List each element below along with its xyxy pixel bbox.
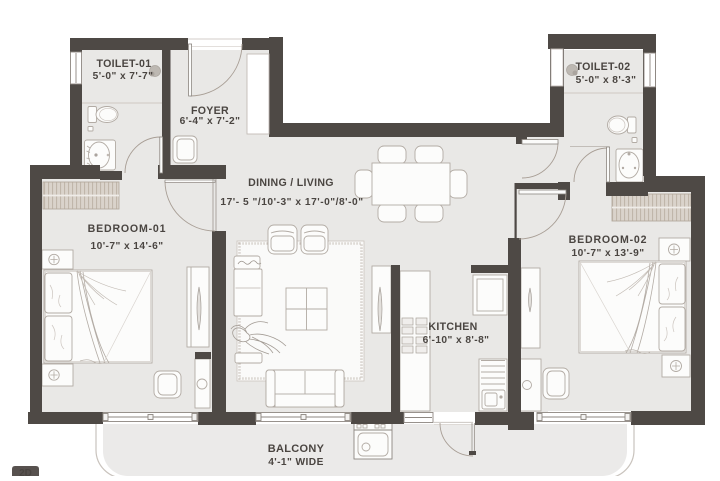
svg-text:6'-10" x 8'-8": 6'-10" x 8'-8": [423, 335, 490, 346]
svg-text:6'-4" x 7'-2": 6'-4" x 7'-2": [180, 116, 241, 127]
svg-text:17'- 5 "/10'-3" x 17'-0"/8'-0": 17'- 5 "/10'-3" x 17'-0"/8'-0": [220, 197, 363, 208]
svg-text:5'-0" x 7'-7": 5'-0" x 7'-7": [93, 71, 154, 82]
svg-text:4'-1" WIDE: 4'-1" WIDE: [268, 457, 324, 468]
svg-text:2D: 2D: [19, 468, 32, 476]
svg-text:KITCHEN: KITCHEN: [428, 321, 477, 333]
svg-text:BEDROOM-01: BEDROOM-01: [88, 223, 167, 235]
svg-text:DINING / LIVING: DINING / LIVING: [248, 177, 334, 189]
svg-text:BALCONY: BALCONY: [268, 443, 325, 455]
svg-text:TOILET-01: TOILET-01: [97, 58, 152, 70]
svg-text:10'-7" x 14'-6": 10'-7" x 14'-6": [91, 241, 164, 252]
svg-text:BEDROOM-02: BEDROOM-02: [569, 234, 648, 246]
svg-text:5'-0" x 8'-3": 5'-0" x 8'-3": [576, 75, 637, 86]
svg-text:TOILET-02: TOILET-02: [576, 61, 631, 73]
svg-text:10'-7" x 13'-9": 10'-7" x 13'-9": [572, 248, 645, 259]
